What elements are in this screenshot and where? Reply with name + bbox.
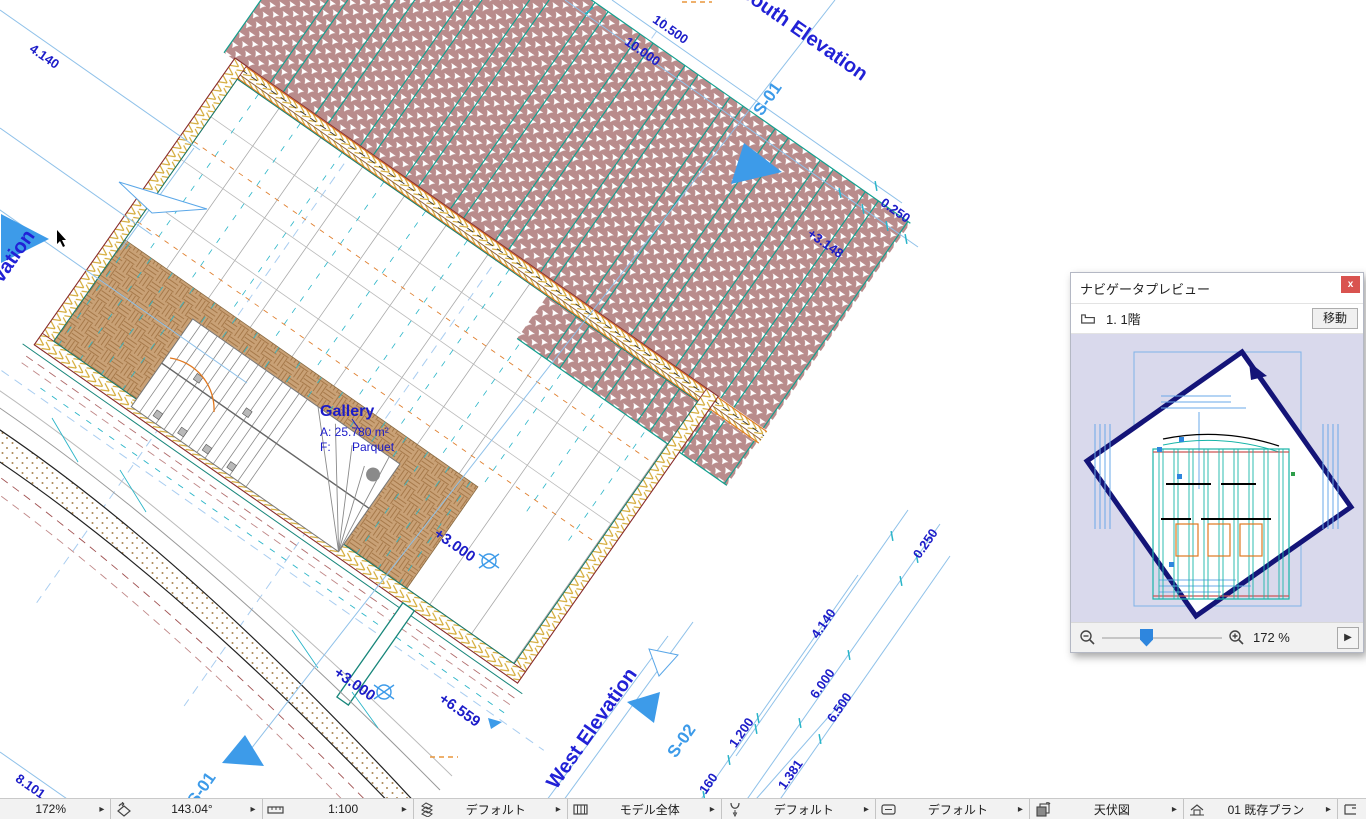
section-line-s02	[558, 622, 693, 799]
rotate-orientation-icon	[115, 802, 133, 817]
room-floor-label: F:	[320, 440, 331, 454]
room-name: Gallery	[320, 403, 374, 420]
story-plan-icon	[1079, 311, 1097, 326]
chevron-right-icon[interactable]: ▸	[554, 804, 563, 815]
move-button[interactable]: 移動	[1312, 308, 1358, 329]
s02-triangle	[627, 692, 660, 723]
dim-0250-right: 0.250	[910, 526, 941, 561]
dim-1381: 1.381	[775, 757, 806, 792]
layers-icon	[418, 802, 436, 817]
statusbar-partial-segment[interactable]	[1338, 799, 1366, 819]
panel-expand-button[interactable]: ▶	[1337, 627, 1359, 649]
close-icon[interactable]: x	[1341, 276, 1360, 293]
room-area: A: 25.780 m²	[320, 425, 389, 439]
preview-zoom-bar: 172 % ▶	[1071, 622, 1363, 652]
clipped-icon	[1342, 802, 1360, 817]
mouse-cursor	[57, 230, 66, 247]
story-label: 1. 1階	[1106, 309, 1141, 328]
dim-4140-left: 4.140	[27, 41, 62, 72]
building-plan	[0, 0, 928, 799]
panel-titlebar[interactable]: ナビゲータプレビュー x	[1071, 273, 1363, 304]
dim-8101: 8.101	[13, 771, 48, 799]
statusbar-orientation[interactable]: 143.04° ▸	[111, 799, 262, 819]
statusbar-layer[interactable]: デフォルト ▸	[414, 799, 568, 819]
statusbar-ceiling-plan[interactable]: 天伏図 ▸	[1030, 799, 1184, 819]
statusbar-model-view[interactable]: モデル全体 ▸	[568, 799, 722, 819]
navigator-preview-panel: ナビゲータプレビュー x 1. 1階 移動	[1070, 272, 1364, 653]
zoom-percentage: 172 %	[1253, 630, 1290, 645]
model-view-options-icon	[572, 802, 590, 817]
dim-6500: 6.500	[824, 690, 855, 725]
dim-4140-right: 4.140	[808, 606, 839, 641]
status-bar: 172% ▸ 143.04° ▸ 1:100 ▸ デフォルト ▸ モデル全体 ▸	[0, 798, 1366, 819]
zoom-in-icon[interactable]	[1228, 629, 1245, 646]
zoom-out-icon[interactable]	[1079, 629, 1096, 646]
ruler-icon	[267, 802, 285, 817]
rounded-rect-icon	[880, 802, 898, 817]
dim-160: 160	[696, 770, 721, 796]
label-south-elevation: South Elevation	[735, 0, 871, 85]
statusbar-dimension-style[interactable]: デフォルト ▸	[876, 799, 1030, 819]
chevron-right-icon[interactable]: ▸	[1170, 804, 1179, 815]
statusbar-zoom[interactable]: 172% ▸	[0, 799, 111, 819]
pen-set-icon	[726, 802, 744, 817]
chevron-right-icon[interactable]: ▸	[97, 804, 106, 815]
chevron-right-icon[interactable]: ▸	[862, 804, 871, 815]
chevron-right-icon[interactable]: ▸	[708, 804, 717, 815]
statusbar-scale[interactable]: 1:100 ▸	[263, 799, 414, 819]
statusbar-renovation-filter[interactable]: 01 既存プラン ▸	[1184, 799, 1338, 819]
copy-pages-icon	[1034, 802, 1052, 817]
statusbar-pen-set[interactable]: デフォルト ▸	[722, 799, 876, 819]
level-6559: +6.559	[436, 690, 484, 730]
dim-6000: 6.000	[807, 666, 838, 701]
app-window: South Elevation West Elevation Elevation…	[0, 0, 1366, 819]
story-row: 1. 1階 移動	[1071, 304, 1363, 334]
label-s02: S-02	[663, 721, 699, 761]
chevron-right-icon[interactable]: ▸	[1016, 804, 1025, 815]
preview-area[interactable]	[1071, 334, 1363, 622]
zoom-slider-thumb[interactable]	[1140, 629, 1153, 647]
house-3d-icon	[1188, 802, 1206, 817]
panel-title: ナビゲータプレビュー	[1080, 279, 1210, 298]
chevron-right-icon[interactable]: ▸	[249, 804, 258, 815]
s02-triangle-outline	[649, 649, 678, 676]
chevron-right-icon[interactable]: ▸	[1324, 804, 1333, 815]
label-s01-bottom: S-01	[183, 769, 219, 799]
zoom-slider[interactable]	[1102, 628, 1222, 648]
room-floor-value: Parquet	[352, 440, 395, 454]
chevron-right-icon[interactable]: ▸	[400, 804, 409, 815]
label-west-elevation: West Elevation	[542, 664, 641, 793]
label-s01-top: S-01	[749, 79, 785, 119]
